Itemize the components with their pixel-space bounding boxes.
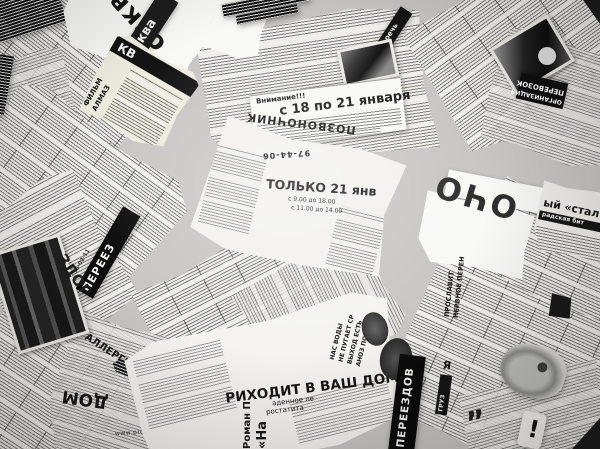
newspaper-collage-photo: осква ква во речь ОРГАНИЗАЦИЯ ПЕРЕВОЗОК … (0, 0, 600, 449)
headline-kv: КВ (116, 41, 138, 61)
headline-pereezdov: ПЕРЕЕЗДОВ (396, 358, 417, 449)
side-text (325, 205, 386, 275)
headline-ya: Я (442, 359, 452, 371)
headline-na: «На (256, 410, 269, 449)
headline-roman: Роман П (243, 400, 253, 449)
exclamation-mark: ! (526, 416, 542, 442)
headline-dom: ДОМ (61, 387, 109, 410)
headline-gruz: ГРУЗ (438, 378, 449, 413)
gruz-band: ГРУЗ (435, 374, 452, 415)
side-text (198, 144, 268, 234)
body-text (133, 340, 237, 430)
